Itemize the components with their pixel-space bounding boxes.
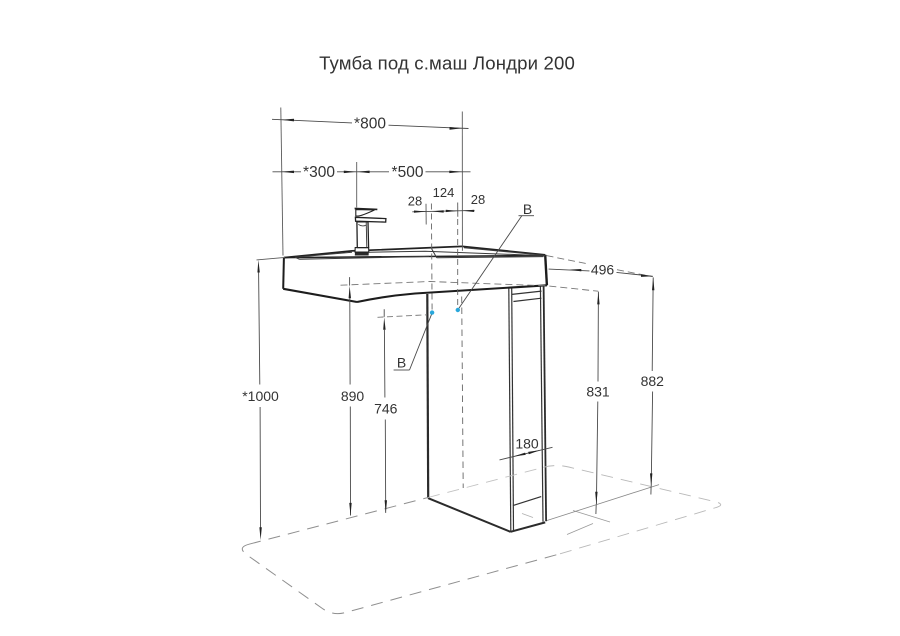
svg-text:28: 28	[408, 194, 422, 209]
svg-text:*300: *300	[303, 164, 335, 181]
svg-text:124: 124	[433, 185, 455, 200]
svg-text:*800: *800	[354, 115, 386, 132]
svg-text:*1000: *1000	[242, 388, 279, 404]
svg-text:890: 890	[341, 388, 365, 404]
svg-text:В: В	[397, 355, 406, 371]
svg-text:*500: *500	[392, 164, 424, 181]
svg-text:180: 180	[515, 436, 539, 452]
svg-text:28: 28	[471, 192, 485, 207]
svg-text:Тумба под с.маш Лондри 200: Тумба под с.маш Лондри 200	[319, 53, 575, 74]
svg-text:831: 831	[586, 384, 610, 400]
svg-text:746: 746	[374, 401, 398, 417]
svg-text:В: В	[523, 201, 532, 217]
svg-text:882: 882	[641, 373, 665, 389]
svg-text:496: 496	[591, 261, 615, 277]
